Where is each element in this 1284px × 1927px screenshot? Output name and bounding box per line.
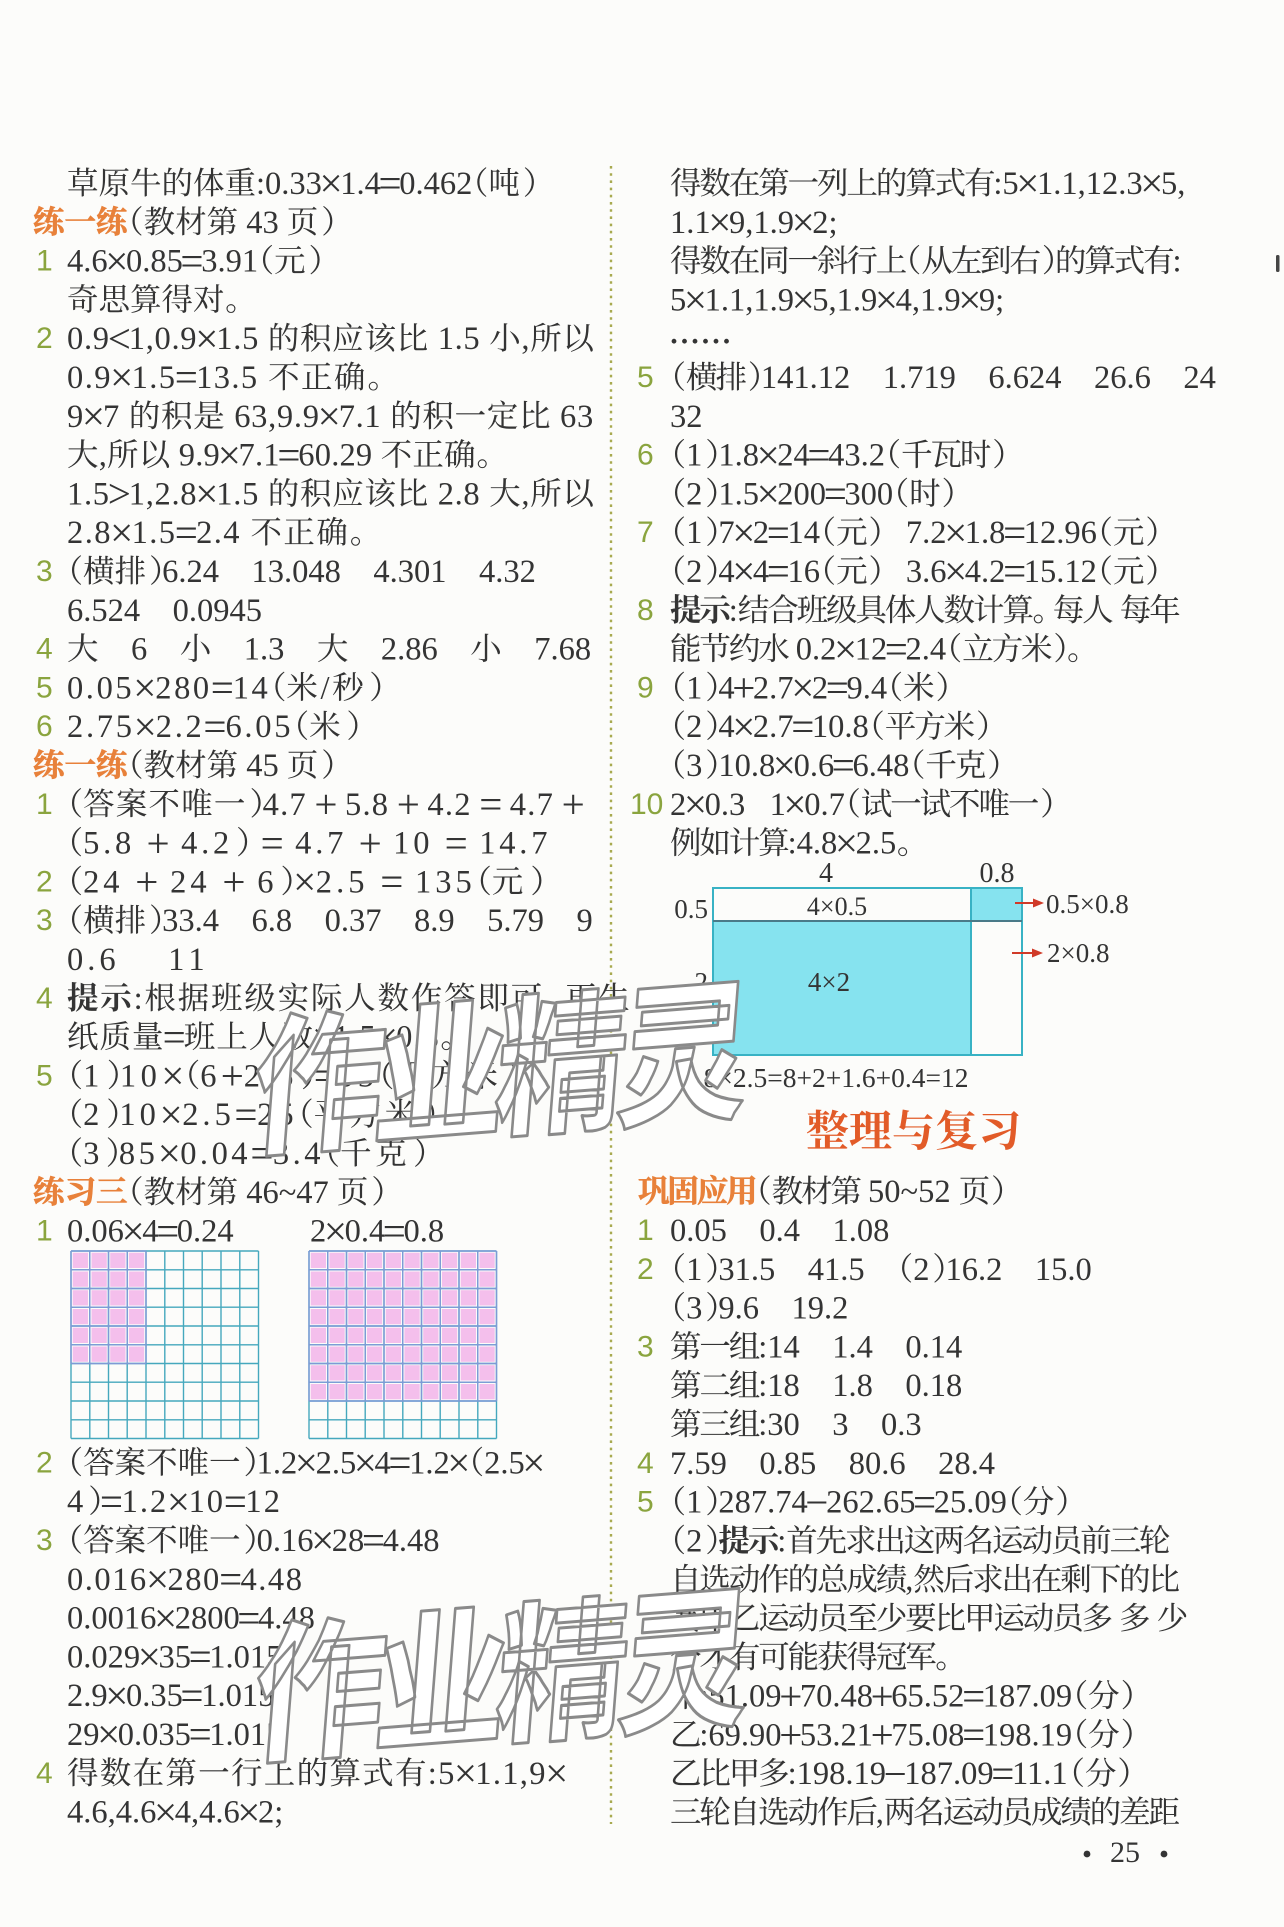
svg-text:2: 2 xyxy=(686,476,702,512)
svg-text:−: − xyxy=(805,1479,828,1525)
svg-text:.: . xyxy=(85,360,93,396)
svg-text:8: 8 xyxy=(185,1562,201,1598)
svg-text:×: × xyxy=(1016,160,1039,206)
svg-text:×: × xyxy=(110,354,133,400)
svg-text:4: 4 xyxy=(252,670,268,706)
svg-text:=: = xyxy=(261,820,284,866)
svg-text:4: 4 xyxy=(36,1757,53,1790)
svg-text:+: + xyxy=(562,781,585,827)
svg-text:0: 0 xyxy=(212,1136,228,1172)
svg-text:5: 5 xyxy=(215,1097,231,1133)
svg-text:1: 1 xyxy=(36,245,53,278)
svg-text:×: × xyxy=(320,160,343,206)
svg-text:,: , xyxy=(520,1756,528,1792)
svg-text:×: × xyxy=(158,1130,181,1176)
svg-text:4: 4 xyxy=(304,1136,320,1172)
svg-text:2: 2 xyxy=(686,709,702,745)
svg-text:9: 9 xyxy=(277,399,293,435)
svg-text:=: = xyxy=(224,1478,247,1524)
svg-text:×: × xyxy=(708,199,731,245)
svg-text:2: 2 xyxy=(686,1523,702,1559)
svg-text:1.4: 1.4 xyxy=(340,166,381,202)
svg-text:1: 1 xyxy=(129,476,145,512)
svg-text:0: 0 xyxy=(180,1136,196,1172)
svg-text:+: + xyxy=(222,859,245,905)
svg-text:5: 5 xyxy=(159,360,175,396)
svg-text:=: = xyxy=(832,742,855,788)
svg-text:4.2: 4.2 xyxy=(965,554,1006,590)
svg-text:.: . xyxy=(86,709,94,745)
svg-text:5: 5 xyxy=(93,476,109,512)
svg-text:1: 1 xyxy=(364,399,380,435)
svg-text:4.6: 4.6 xyxy=(67,244,108,280)
svg-text:0: 0 xyxy=(413,826,429,862)
svg-text:2.86: 2.86 xyxy=(348,632,470,668)
svg-text:1.2: 1.2 xyxy=(257,1445,298,1481)
svg-text:0.35: 0.35 xyxy=(126,1678,183,1714)
svg-text:9.6 19.2: 9.6 19.2 xyxy=(718,1291,848,1327)
svg-text:.: . xyxy=(233,321,241,357)
svg-text:.: . xyxy=(200,1136,208,1172)
svg-text:×: × xyxy=(110,509,133,555)
svg-text:4.6,4.6: 4.6,4.6 xyxy=(67,1795,156,1831)
svg-text:6: 6 xyxy=(257,864,273,900)
svg-text:/: / xyxy=(321,670,331,706)
svg-text:10.8: 10.8 xyxy=(718,748,775,784)
svg-text:1: 1 xyxy=(502,1756,518,1792)
svg-text:8: 8 xyxy=(119,1136,135,1172)
svg-text:1: 1 xyxy=(475,1756,491,1792)
svg-text:2.7: 2.7 xyxy=(753,670,794,706)
svg-text:×: × xyxy=(237,1789,260,1835)
svg-text:2: 2 xyxy=(196,515,212,551)
svg-text:4×2: 4×2 xyxy=(808,967,850,997)
svg-text:1: 1 xyxy=(415,864,431,900)
svg-text:5,: 5, xyxy=(1161,166,1185,202)
svg-text:5: 5 xyxy=(456,864,472,900)
svg-text:9: 9 xyxy=(637,671,654,704)
svg-text:.: . xyxy=(244,709,252,745)
svg-text:0.06: 0.06 xyxy=(67,1214,124,1250)
svg-text:2.9: 2.9 xyxy=(67,1678,108,1714)
svg-text:.: . xyxy=(255,438,263,474)
svg-text:2: 2 xyxy=(264,1484,280,1520)
svg-text:0.3 1: 0.3 1 xyxy=(705,787,786,823)
svg-text:1: 1 xyxy=(686,438,702,474)
svg-text:5: 5 xyxy=(348,864,364,900)
svg-text:,: , xyxy=(268,399,276,435)
svg-text:9: 9 xyxy=(303,399,319,435)
svg-text:4,1.9: 4,1.9 xyxy=(896,282,961,318)
svg-text:6: 6 xyxy=(200,1058,216,1094)
svg-text:×: × xyxy=(195,471,218,517)
svg-text:25.09: 25.09 xyxy=(934,1485,1007,1521)
svg-text:2;: 2; xyxy=(812,205,837,241)
svg-text:×: × xyxy=(138,1634,161,1680)
svg-text:4: 4 xyxy=(190,864,206,900)
svg-text:3: 3 xyxy=(686,748,702,784)
svg-text:×: × xyxy=(792,277,815,323)
svg-text:8: 8 xyxy=(286,1562,302,1598)
svg-text:7: 7 xyxy=(537,787,553,823)
svg-text:2: 2 xyxy=(150,1484,166,1520)
svg-text:=: = xyxy=(380,859,403,905)
svg-text:1: 1 xyxy=(686,670,702,706)
svg-text:0: 0 xyxy=(141,1058,157,1094)
svg-text:.: . xyxy=(85,1562,93,1598)
svg-text:3: 3 xyxy=(435,864,451,900)
svg-text:0: 0 xyxy=(140,1097,156,1133)
svg-text:=: = xyxy=(277,432,300,478)
svg-text:15.12: 15.12 xyxy=(1024,554,1097,590)
svg-text:=: = xyxy=(479,781,502,827)
svg-text:75.08: 75.08 xyxy=(891,1717,964,1753)
svg-text:5,1.9: 5,1.9 xyxy=(812,282,877,318)
svg-text:32: 32 xyxy=(670,399,703,435)
svg-text:=: = xyxy=(175,509,198,555)
svg-text:.: . xyxy=(293,1136,301,1172)
svg-text:3: 3 xyxy=(36,1524,53,1557)
svg-text:1: 1 xyxy=(637,1214,654,1247)
svg-text:=: = xyxy=(1003,548,1026,594)
svg-text:×: × xyxy=(684,781,707,827)
svg-text:×: × xyxy=(167,1478,190,1524)
svg-text:0: 0 xyxy=(97,670,113,706)
svg-text:6: 6 xyxy=(298,438,314,474)
svg-text:50~52: 50~52 xyxy=(860,1174,959,1210)
svg-text:6.48: 6.48 xyxy=(853,748,910,784)
svg-text:8: 8 xyxy=(463,476,479,512)
svg-text:65.52: 65.52 xyxy=(891,1679,964,1715)
svg-text:11.1: 11.1 xyxy=(1012,1756,1068,1792)
svg-text:2: 2 xyxy=(36,865,53,898)
svg-text:5: 5 xyxy=(345,787,361,823)
svg-text:3.91: 3.91 xyxy=(201,244,258,280)
svg-text:4: 4 xyxy=(231,1136,247,1172)
svg-text:4: 4 xyxy=(67,1484,83,1520)
svg-text:1: 1 xyxy=(122,1484,138,1520)
svg-text:1: 1 xyxy=(36,1215,53,1248)
svg-text:.: . xyxy=(258,1562,266,1598)
svg-text:8: 8 xyxy=(174,670,190,706)
svg-text:5: 5 xyxy=(139,1136,155,1172)
svg-text:5: 5 xyxy=(83,826,99,862)
svg-text:×: × xyxy=(875,277,898,323)
svg-text:16.2 15.0: 16.2 15.0 xyxy=(946,1252,1092,1288)
svg-text:4.48: 4.48 xyxy=(383,1523,440,1559)
svg-text:.: . xyxy=(455,476,463,512)
svg-text:6: 6 xyxy=(560,399,576,435)
svg-text:2: 2 xyxy=(316,864,332,900)
svg-text:4: 4 xyxy=(263,787,279,823)
svg-text:4: 4 xyxy=(103,864,119,900)
svg-text:5: 5 xyxy=(637,1486,654,1519)
svg-text:0: 0 xyxy=(207,1484,223,1520)
svg-text:4: 4 xyxy=(36,982,53,1015)
svg-text::0.33: :0.33 xyxy=(256,166,322,202)
svg-text:1.2: 1.2 xyxy=(409,1445,450,1481)
svg-text:2: 2 xyxy=(36,322,53,355)
svg-text:+: + xyxy=(397,781,420,827)
svg-text:2.5: 2.5 xyxy=(316,1445,357,1481)
svg-text:2.5: 2.5 xyxy=(856,826,897,862)
svg-text:1: 1 xyxy=(233,670,249,706)
svg-text:×: × xyxy=(792,199,815,245)
svg-text:7: 7 xyxy=(97,709,113,745)
svg-text:14: 14 xyxy=(788,515,821,551)
svg-text:3: 3 xyxy=(686,1291,702,1327)
svg-text:0: 0 xyxy=(193,670,209,706)
svg-text:.: . xyxy=(149,360,157,396)
svg-text:1: 1 xyxy=(83,1058,99,1094)
svg-text:262.65: 262.65 xyxy=(826,1485,915,1521)
svg-text:×: × xyxy=(311,1517,334,1563)
svg-text:1: 1 xyxy=(686,1252,702,1288)
svg-text:.: . xyxy=(86,670,94,706)
svg-text:+: + xyxy=(135,859,158,905)
svg-text:9;: 9; xyxy=(979,282,1004,318)
svg-text:0.462: 0.462 xyxy=(399,166,472,202)
svg-text:9: 9 xyxy=(529,1756,545,1792)
svg-text:=: = xyxy=(379,160,402,206)
svg-text:1: 1 xyxy=(216,321,232,357)
svg-text:0: 0 xyxy=(67,321,83,357)
svg-text:.: . xyxy=(84,476,92,512)
svg-text:5: 5 xyxy=(36,671,53,704)
svg-text:,: , xyxy=(146,321,154,357)
svg-text:5: 5 xyxy=(438,1756,454,1792)
svg-text:45: 45 xyxy=(238,748,287,784)
svg-text:,: , xyxy=(876,1795,884,1831)
svg-text:2.5: 2.5 xyxy=(484,1445,525,1481)
svg-text:×: × xyxy=(783,781,806,827)
svg-text:2×0.8: 2×0.8 xyxy=(1047,938,1109,968)
svg-text:.: . xyxy=(175,709,183,745)
svg-text:2: 2 xyxy=(67,709,83,745)
svg-text:1: 1 xyxy=(438,321,454,357)
svg-text:187.09: 187.09 xyxy=(904,1756,993,1792)
svg-text:0.8: 0.8 xyxy=(404,1214,445,1250)
svg-text:2: 2 xyxy=(170,864,186,900)
svg-text::: : xyxy=(134,981,143,1017)
svg-text:7: 7 xyxy=(103,399,119,435)
svg-text:.: . xyxy=(527,787,535,823)
svg-text:1: 1 xyxy=(119,1097,135,1133)
svg-text:9: 9 xyxy=(179,438,195,474)
svg-text:=: = xyxy=(826,665,849,711)
svg-text:=: = xyxy=(991,1750,1014,1796)
svg-text:10: 10 xyxy=(630,788,663,821)
svg-text:0.035: 0.035 xyxy=(118,1717,191,1753)
svg-text:7.59 0.85 80.6 28.4: 7.59 0.85 80.6 28.4 xyxy=(670,1446,995,1482)
svg-text:33.4 6.8 0.37 8.9: 33.4 6.8 0.37 8.9 5.79 9 xyxy=(162,903,593,939)
svg-text:=: = xyxy=(175,354,198,400)
svg-text:2.7: 2.7 xyxy=(753,709,794,745)
svg-text:+: + xyxy=(314,781,337,827)
svg-text:×: × xyxy=(835,820,858,866)
svg-text:.: . xyxy=(331,438,339,474)
svg-text:0.24: 0.24 xyxy=(177,1214,234,1250)
svg-text:0: 0 xyxy=(255,709,271,745)
svg-text:2: 2 xyxy=(186,709,202,745)
svg-text:×: × xyxy=(958,277,981,323)
svg-text:.: . xyxy=(195,438,203,474)
svg-text:×: × xyxy=(324,1208,347,1254)
svg-text:×: × xyxy=(447,1440,470,1486)
svg-text:×: × xyxy=(1140,160,1163,206)
svg-text:×: × xyxy=(522,1440,545,1486)
svg-text:,: , xyxy=(521,476,529,512)
svg-text:×: × xyxy=(354,1440,377,1486)
svg-text:4: 4 xyxy=(223,515,239,551)
svg-text:0.2: 0.2 xyxy=(788,632,837,668)
svg-text:35: 35 xyxy=(159,1639,192,1675)
svg-text:.: . xyxy=(214,515,222,551)
svg-text:1.8: 1.8 xyxy=(965,515,1006,551)
svg-text:×: × xyxy=(97,1711,120,1757)
svg-text:.: . xyxy=(140,1484,148,1520)
svg-text:+: + xyxy=(359,820,382,866)
svg-text:187.09: 187.09 xyxy=(983,1679,1072,1715)
svg-text:6: 6 xyxy=(99,942,115,978)
svg-text:2: 2 xyxy=(244,1058,260,1094)
svg-text:6.24 13.048 4.301 4.3: 6.24 13.048 4.301 4.32 xyxy=(162,554,536,590)
svg-text:10.8: 10.8 xyxy=(812,709,869,745)
svg-text:1.5: 1.5 xyxy=(718,476,759,512)
svg-text:2: 2 xyxy=(155,670,171,706)
svg-text:0.05 0.4 1.08: 0.05 0.4 1.08 xyxy=(670,1213,889,1249)
svg-text:2: 2 xyxy=(83,1097,99,1133)
svg-text:=: = xyxy=(445,820,468,866)
svg-text:×: × xyxy=(293,859,316,905)
svg-text:5: 5 xyxy=(637,361,654,394)
svg-text:0.4: 0.4 xyxy=(345,1214,386,1250)
svg-text::: : xyxy=(777,1523,786,1559)
svg-text:2: 2 xyxy=(340,438,356,474)
svg-text:.: . xyxy=(172,476,180,512)
svg-text:7.2: 7.2 xyxy=(882,515,947,551)
svg-text:×: × xyxy=(195,315,218,361)
svg-text:3: 3 xyxy=(83,1136,99,1172)
svg-text:7: 7 xyxy=(531,826,547,862)
svg-text:×: × xyxy=(545,1750,568,1796)
svg-text:4: 4 xyxy=(36,633,53,666)
svg-text:5: 5 xyxy=(463,321,479,357)
svg-text:4: 4 xyxy=(427,787,443,823)
svg-text:8: 8 xyxy=(372,787,388,823)
svg-text:16: 16 xyxy=(788,554,821,590)
svg-text:287.74: 287.74 xyxy=(718,1485,807,1521)
svg-text:6: 6 xyxy=(234,399,250,435)
svg-text:9,1.9: 9,1.9 xyxy=(729,205,794,241)
svg-text:7: 7 xyxy=(327,826,343,862)
svg-text:5: 5 xyxy=(274,709,290,745)
svg-text:200: 200 xyxy=(777,476,826,512)
svg-text:25: 25 xyxy=(1110,1836,1140,1869)
svg-text:70.48: 70.48 xyxy=(800,1679,873,1715)
svg-text:6: 6 xyxy=(36,710,53,743)
svg-text:+: + xyxy=(779,1712,802,1758)
svg-text:3: 3 xyxy=(214,360,230,396)
svg-text:9: 9 xyxy=(356,438,372,474)
svg-text:=: = xyxy=(962,1712,985,1758)
svg-text:0: 0 xyxy=(315,438,331,474)
svg-text:6: 6 xyxy=(130,1562,146,1598)
svg-text:.: . xyxy=(363,787,371,823)
svg-text:4: 4 xyxy=(181,826,197,862)
svg-text::: : xyxy=(428,1756,437,1792)
svg-text:46~47: 46~47 xyxy=(238,1175,337,1211)
svg-text:=: = xyxy=(824,471,847,517)
svg-text:.: . xyxy=(233,476,241,512)
svg-text:12.96: 12.96 xyxy=(1024,515,1097,551)
svg-text:×: × xyxy=(318,393,341,439)
svg-text:0: 0 xyxy=(155,321,171,357)
svg-text:4: 4 xyxy=(241,1562,257,1598)
svg-text:=: = xyxy=(388,1440,411,1486)
svg-text:−: − xyxy=(884,1750,907,1796)
svg-text:141.12 1.719 6.624 26: 141.12 1.719 6.624 26.6 24 xyxy=(761,360,1216,396)
svg-text:.: . xyxy=(336,864,344,900)
svg-text:2: 2 xyxy=(454,787,470,823)
svg-text::30 3 0.3: :30 3 0.3 xyxy=(758,1407,921,1443)
svg-text:1: 1 xyxy=(393,826,409,862)
svg-text::5: :5 xyxy=(993,166,1018,202)
svg-text:5: 5 xyxy=(242,321,258,357)
svg-text:2: 2 xyxy=(83,864,99,900)
svg-text:=: = xyxy=(913,1479,936,1525)
svg-text:,: , xyxy=(521,321,529,357)
svg-text:3: 3 xyxy=(251,399,267,435)
svg-text:1: 1 xyxy=(67,476,83,512)
svg-text:6: 6 xyxy=(226,709,242,745)
svg-text:1: 1 xyxy=(479,826,495,862)
svg-text:7.68: 7.68 xyxy=(502,632,591,668)
svg-text:1: 1 xyxy=(245,1484,261,1520)
svg-text:2: 2 xyxy=(36,1446,53,1479)
svg-text:6: 6 xyxy=(637,439,654,472)
svg-text:9: 9 xyxy=(180,321,196,357)
svg-text:4×0.5: 4×0.5 xyxy=(807,892,867,921)
svg-text::14 1.4 0.14: :14 1.4 0.14 xyxy=(758,1329,962,1365)
svg-text:1: 1 xyxy=(686,515,702,551)
svg-text:1.3: 1.3 xyxy=(211,632,317,668)
svg-text:×: × xyxy=(732,703,755,749)
svg-text:2: 2 xyxy=(213,826,229,862)
svg-text:300: 300 xyxy=(844,476,893,512)
svg-text:×: × xyxy=(684,277,707,323)
svg-text:12: 12 xyxy=(855,632,888,668)
svg-text:1: 1 xyxy=(189,1484,205,1520)
svg-text:1: 1 xyxy=(686,1485,702,1521)
svg-text:4: 4 xyxy=(637,1447,654,1480)
svg-text:2: 2 xyxy=(637,1253,654,1286)
svg-text:7: 7 xyxy=(637,516,654,549)
svg-text::198.19: :198.19 xyxy=(788,1756,886,1792)
svg-text:1.1: 1.1 xyxy=(670,205,711,241)
svg-text:.: . xyxy=(294,399,302,435)
svg-text:1.1,1.9: 1.1,1.9 xyxy=(705,282,794,318)
svg-text:.: . xyxy=(231,360,239,396)
svg-text:5: 5 xyxy=(36,1059,53,1092)
svg-text:4,4.6: 4,4.6 xyxy=(175,1795,240,1831)
svg-text:.: . xyxy=(455,321,463,357)
svg-text:3: 3 xyxy=(36,904,53,937)
svg-text:9: 9 xyxy=(67,399,83,435)
svg-text:0.8: 0.8 xyxy=(980,858,1015,889)
svg-text:5: 5 xyxy=(242,476,258,512)
svg-text:.: . xyxy=(149,515,157,551)
